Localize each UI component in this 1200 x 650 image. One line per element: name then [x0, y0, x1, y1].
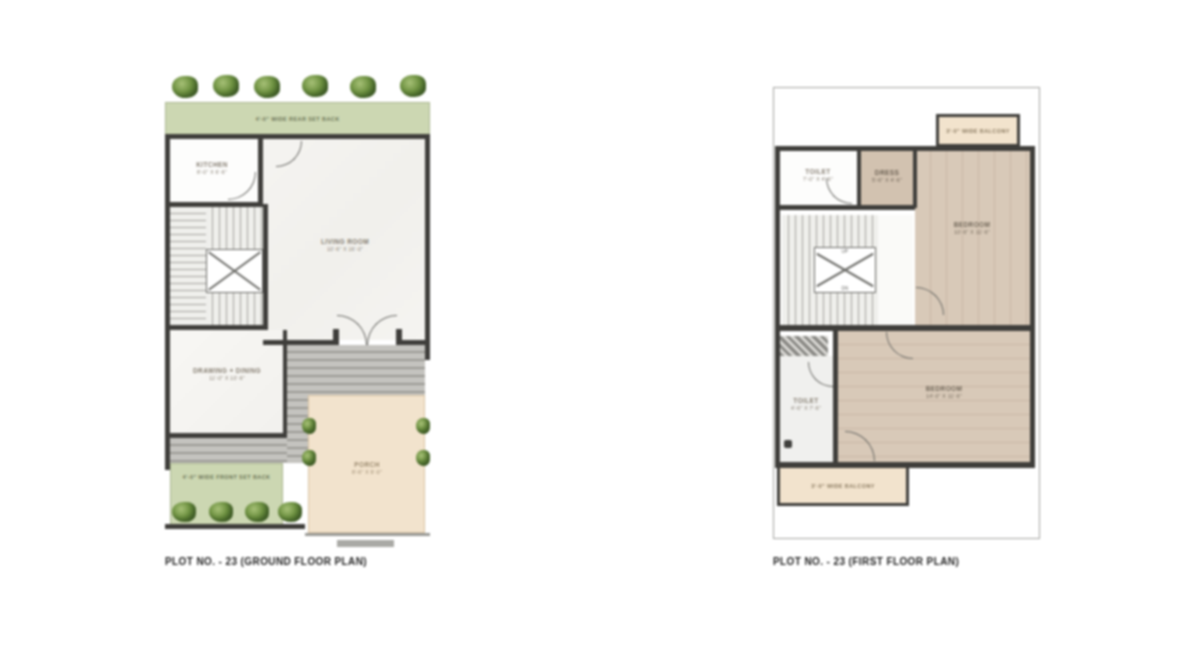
toilet-bottom-label: TOILET 4'-6" X 7'-6": [791, 397, 821, 411]
plant-icon: [278, 502, 302, 522]
duct-shaft: [780, 336, 828, 356]
plant-icon: [213, 75, 239, 97]
plant-icon: [172, 502, 196, 522]
passage: [878, 215, 913, 325]
wall-segment: [775, 146, 1035, 151]
wall-segment: [263, 340, 337, 345]
plant-icon: [416, 418, 430, 434]
bedroom-bottom-label: BEDROOM 14'-0" X 11'-6": [926, 385, 963, 399]
plant-icon: [254, 76, 280, 98]
fixture-marker: [784, 440, 792, 448]
plant-icon: [302, 450, 316, 466]
living-room-label: LIVING ROOM 10'-6" X 16'-0": [321, 238, 369, 252]
wall-segment: [425, 134, 430, 360]
wall-segment: [775, 205, 915, 210]
plant-icon: [172, 76, 198, 98]
first-floor-plan: 3'-0" WIDE BALCONY UP DN: [760, 80, 1060, 555]
plant-icon: [400, 75, 426, 97]
plinth-steps: [170, 438, 287, 463]
wall-segment: [833, 331, 838, 462]
wall-segment: [165, 325, 268, 330]
porch-edge-line: [305, 533, 430, 536]
side-steps: [287, 345, 308, 463]
wall-segment: [857, 151, 861, 205]
stair-treads: [170, 207, 206, 325]
stair-treads: [206, 293, 263, 325]
front-setback-label: 4'-0" WIDE FRONT SET BACK: [183, 474, 271, 480]
wall-segment: [258, 134, 263, 207]
driveway-marker: [337, 540, 394, 547]
drawing-dining-room: [170, 330, 283, 433]
ground-floor-plan: 4'-0" WIDE REAR SET BACK 4'-0" WIDE FRON…: [160, 70, 440, 570]
balcony-bottom: 3'-0" WIDE BALCONY: [777, 468, 909, 506]
wall-segment: [165, 524, 305, 529]
wall-segment: [165, 134, 170, 470]
wall-segment: [1030, 146, 1035, 468]
balcony-top-label: 3'-0" WIDE BALCONY: [946, 128, 1010, 134]
stair-treads: [206, 207, 263, 249]
plant-icon: [302, 75, 328, 97]
entry-steps: [308, 345, 425, 395]
wall-segment: [165, 134, 430, 139]
toilet-top-label: TOILET 7'-0" X 4'-6": [803, 168, 833, 182]
wall-segment: [775, 146, 780, 468]
floor-plans-sheet: 4'-0" WIDE REAR SET BACK 4'-0" WIDE FRON…: [0, 0, 1200, 650]
porch-label: PORCH 8'-6" X 9'-0": [352, 461, 382, 475]
wall-segment: [263, 204, 268, 330]
wall-segment: [165, 202, 263, 207]
ground-floor-caption: PLOT NO. - 23 (GROUND FLOOR PLAN): [165, 556, 367, 567]
bedroom-top-label: BEDROOM 10'-6" X 11'-6": [954, 221, 991, 235]
kitchen-label: KITCHEN 8'-0" X 6'-6": [196, 161, 228, 175]
plant-icon: [209, 502, 233, 522]
plant-icon: [245, 502, 269, 522]
stair-landing-cross-icon: [206, 249, 263, 293]
wall-segment: [283, 330, 287, 437]
balcony-bottom-label: 3'-0" WIDE BALCONY: [811, 483, 875, 489]
drawing-dining-label: DRAWING + DINING 11'-0" X 10'-6": [193, 367, 261, 381]
stair-up-label: UP: [815, 249, 875, 254]
balcony-top: 3'-0" WIDE BALCONY: [936, 114, 1020, 147]
wall-segment: [775, 325, 1035, 331]
first-floor-caption: PLOT NO. - 23 (FIRST FLOOR PLAN): [773, 556, 959, 567]
stair-landing-cross-icon: UP DN: [814, 247, 876, 293]
plant-icon: [350, 76, 376, 98]
stair-dn-label: DN: [815, 286, 875, 291]
plant-icon: [416, 450, 430, 466]
wall-segment: [913, 146, 917, 208]
rear-setback-label: 4'-0" WIDE REAR SET BACK: [255, 116, 339, 122]
plant-icon: [302, 418, 316, 434]
wall-segment: [165, 433, 287, 438]
dress-label: DRESS 5'-6" X 4'-6": [872, 169, 902, 183]
rear-setback-strip: 4'-0" WIDE REAR SET BACK: [165, 102, 430, 136]
